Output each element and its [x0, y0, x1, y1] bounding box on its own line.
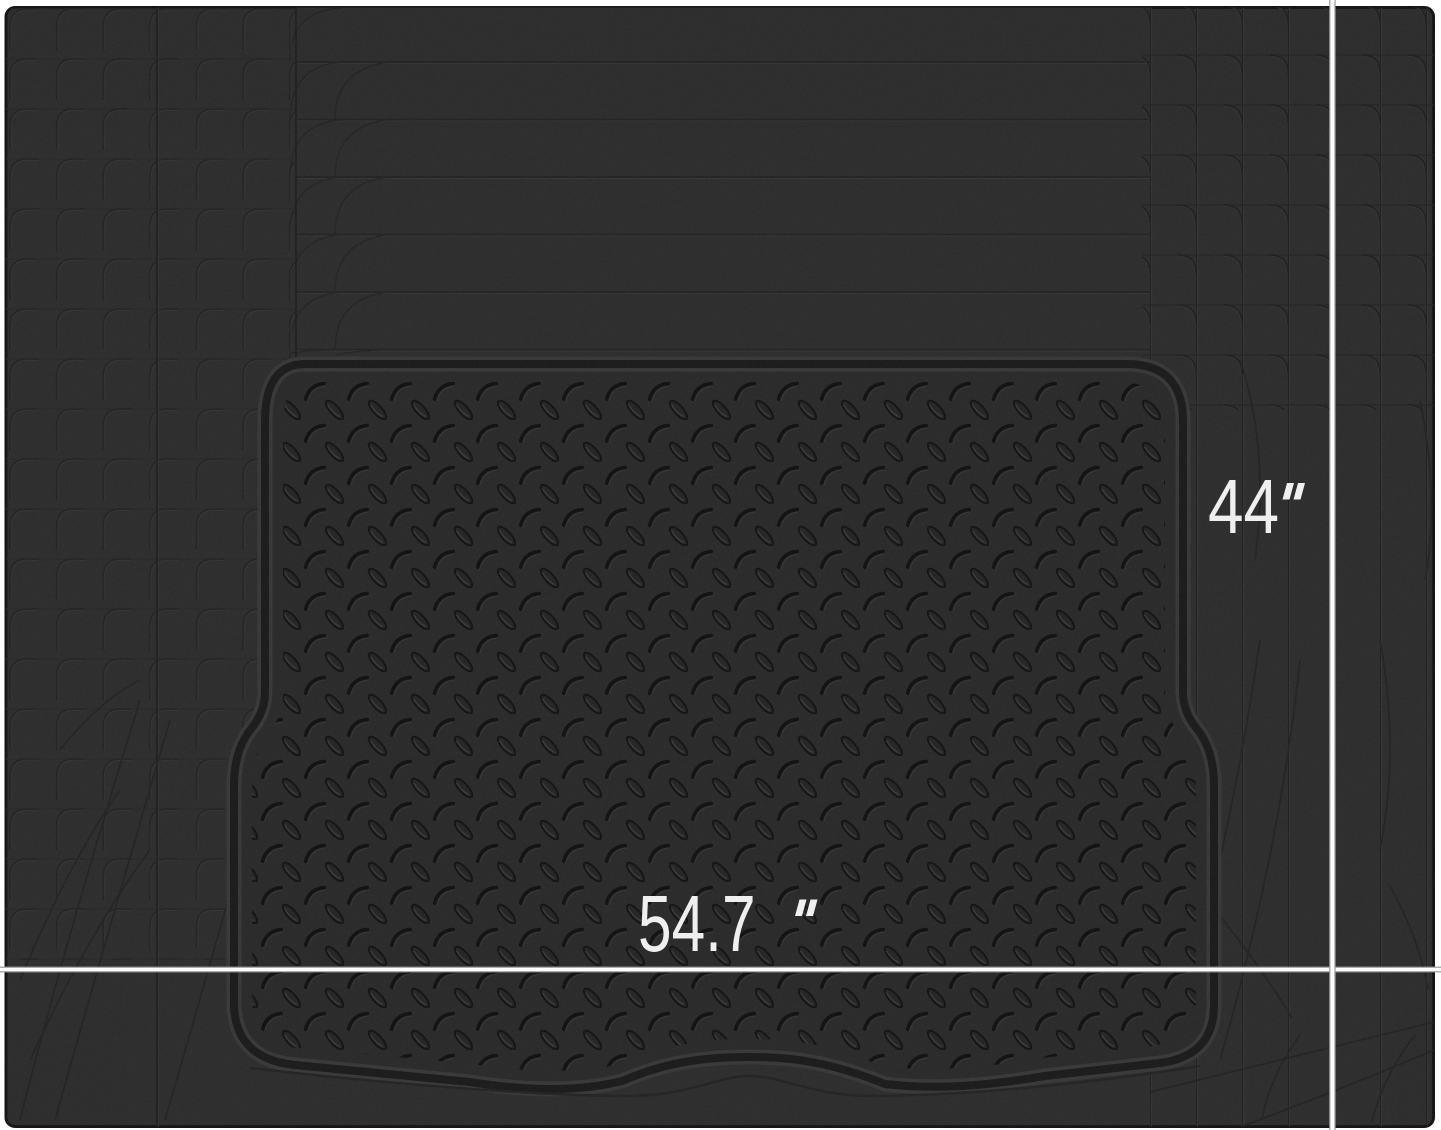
svg-text:44: 44 [1208, 463, 1279, 549]
svg-text:54.7: 54.7 [638, 880, 756, 969]
